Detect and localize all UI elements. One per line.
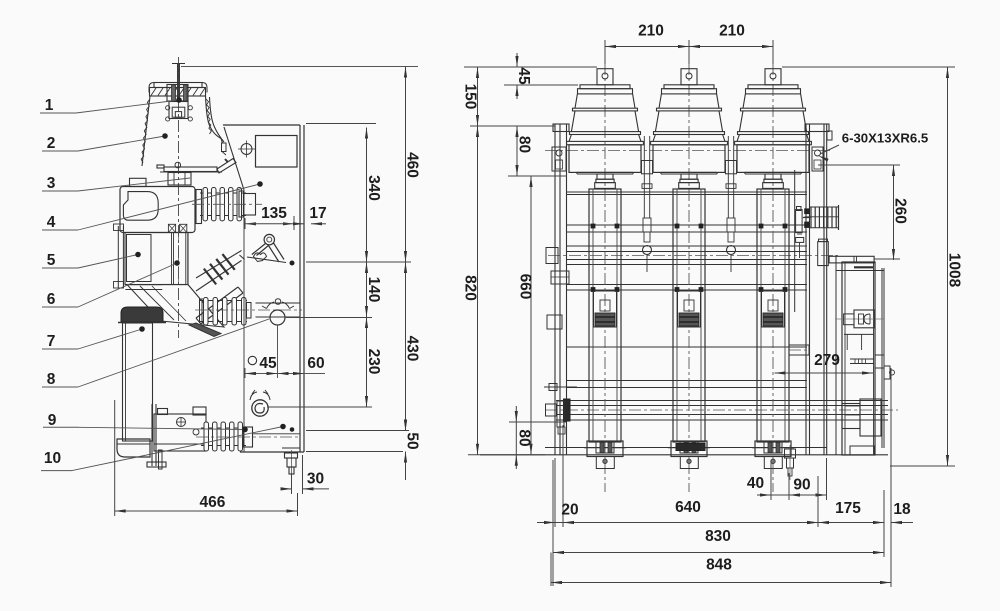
svg-text:279: 279 (814, 352, 840, 369)
svg-text:260: 260 (891, 198, 908, 224)
svg-text:6-30X13XR6.5: 6-30X13XR6.5 (842, 130, 929, 145)
svg-text:820: 820 (461, 275, 478, 301)
svg-text:175: 175 (835, 500, 861, 517)
svg-text:140: 140 (365, 277, 382, 303)
svg-text:17: 17 (309, 205, 326, 222)
svg-text:90: 90 (793, 477, 810, 494)
svg-text:210: 210 (638, 23, 664, 40)
svg-text:30: 30 (307, 471, 324, 488)
svg-text:150: 150 (461, 84, 478, 110)
svg-text:9: 9 (48, 412, 57, 429)
svg-text:45: 45 (259, 355, 277, 372)
svg-text:1: 1 (45, 97, 54, 114)
svg-text:210: 210 (719, 23, 745, 40)
svg-text:135: 135 (261, 205, 287, 222)
svg-text:8: 8 (47, 371, 56, 388)
svg-text:3: 3 (47, 175, 56, 192)
svg-text:230: 230 (365, 349, 382, 375)
svg-text:45: 45 (515, 67, 532, 85)
svg-text:466: 466 (199, 494, 225, 511)
svg-text:430: 430 (403, 336, 420, 362)
svg-text:1008: 1008 (945, 253, 962, 288)
svg-text:5: 5 (47, 252, 56, 269)
svg-text:80: 80 (515, 136, 532, 153)
svg-text:830: 830 (705, 528, 731, 545)
svg-text:4: 4 (47, 214, 56, 231)
svg-text:60: 60 (307, 355, 324, 372)
svg-text:10: 10 (44, 450, 61, 467)
svg-text:2: 2 (47, 135, 56, 152)
svg-text:640: 640 (675, 499, 701, 516)
svg-text:80: 80 (515, 429, 532, 446)
svg-text:848: 848 (706, 557, 732, 574)
svg-text:40: 40 (747, 475, 764, 492)
svg-text:460: 460 (403, 152, 420, 178)
svg-text:340: 340 (365, 175, 382, 201)
svg-text:6: 6 (47, 291, 56, 308)
svg-text:50: 50 (403, 432, 420, 449)
svg-text:20: 20 (561, 502, 578, 519)
svg-text:7: 7 (47, 333, 56, 350)
svg-text:660: 660 (516, 274, 533, 300)
svg-text:18: 18 (893, 501, 911, 518)
